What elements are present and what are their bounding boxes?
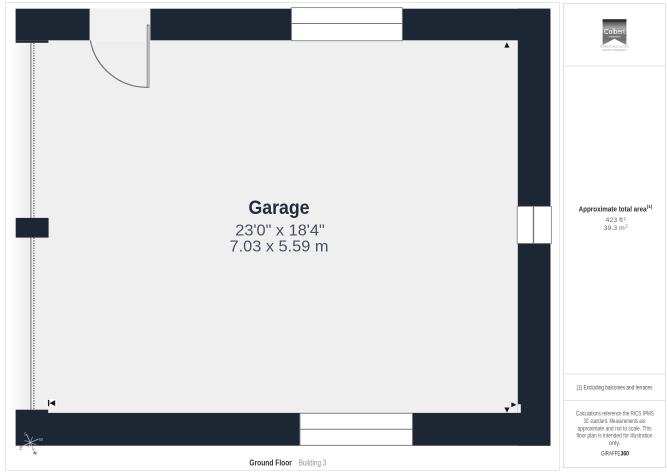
svg-text:GIRAFFE: GIRAFFE	[601, 451, 621, 458]
svg-text:423 ft: 423 ft	[606, 217, 624, 224]
svg-text:Approximate total area: Approximate total area	[579, 204, 648, 213]
svg-text:floor plan is intended for ill: floor plan is intended for illustration	[577, 433, 653, 440]
svg-text:360: 360	[621, 451, 630, 458]
svg-text:PROPERTY MANAGEMENT: PROPERTY MANAGEMENT	[603, 48, 627, 52]
svg-text:ESTATE AGENTS: ESTATE AGENTS	[609, 35, 622, 38]
svg-text:3C standard. Measurements are: 3C standard. Measurements are	[584, 418, 646, 425]
svg-text:39.3 m: 39.3 m	[604, 225, 625, 232]
svg-text:(1) Excluding balconies and te: (1) Excluding balconies and terraces	[577, 385, 653, 392]
svg-text:23'0" x 18'4": 23'0" x 18'4"	[235, 223, 325, 240]
svg-text:7.03 x 5.59 m: 7.03 x 5.59 m	[230, 239, 329, 256]
svg-text:approximate and not to scale.: approximate and not to scale. This	[578, 425, 652, 432]
svg-text:Garage: Garage	[249, 197, 310, 219]
svg-text:Ground Floor: Ground Floor	[249, 459, 292, 468]
svg-text:E: E	[20, 445, 23, 450]
svg-text:only.: only.	[609, 440, 621, 447]
svg-text:Colbert: Colbert	[604, 27, 626, 36]
svg-text:Building 3: Building 3	[299, 459, 327, 468]
svg-text:N: N	[33, 451, 36, 456]
svg-text:Calculations reference the RIC: Calculations reference the RICS IPMS	[576, 411, 654, 418]
svg-text:(1): (1)	[647, 204, 653, 209]
svg-text:S: S	[24, 432, 27, 437]
